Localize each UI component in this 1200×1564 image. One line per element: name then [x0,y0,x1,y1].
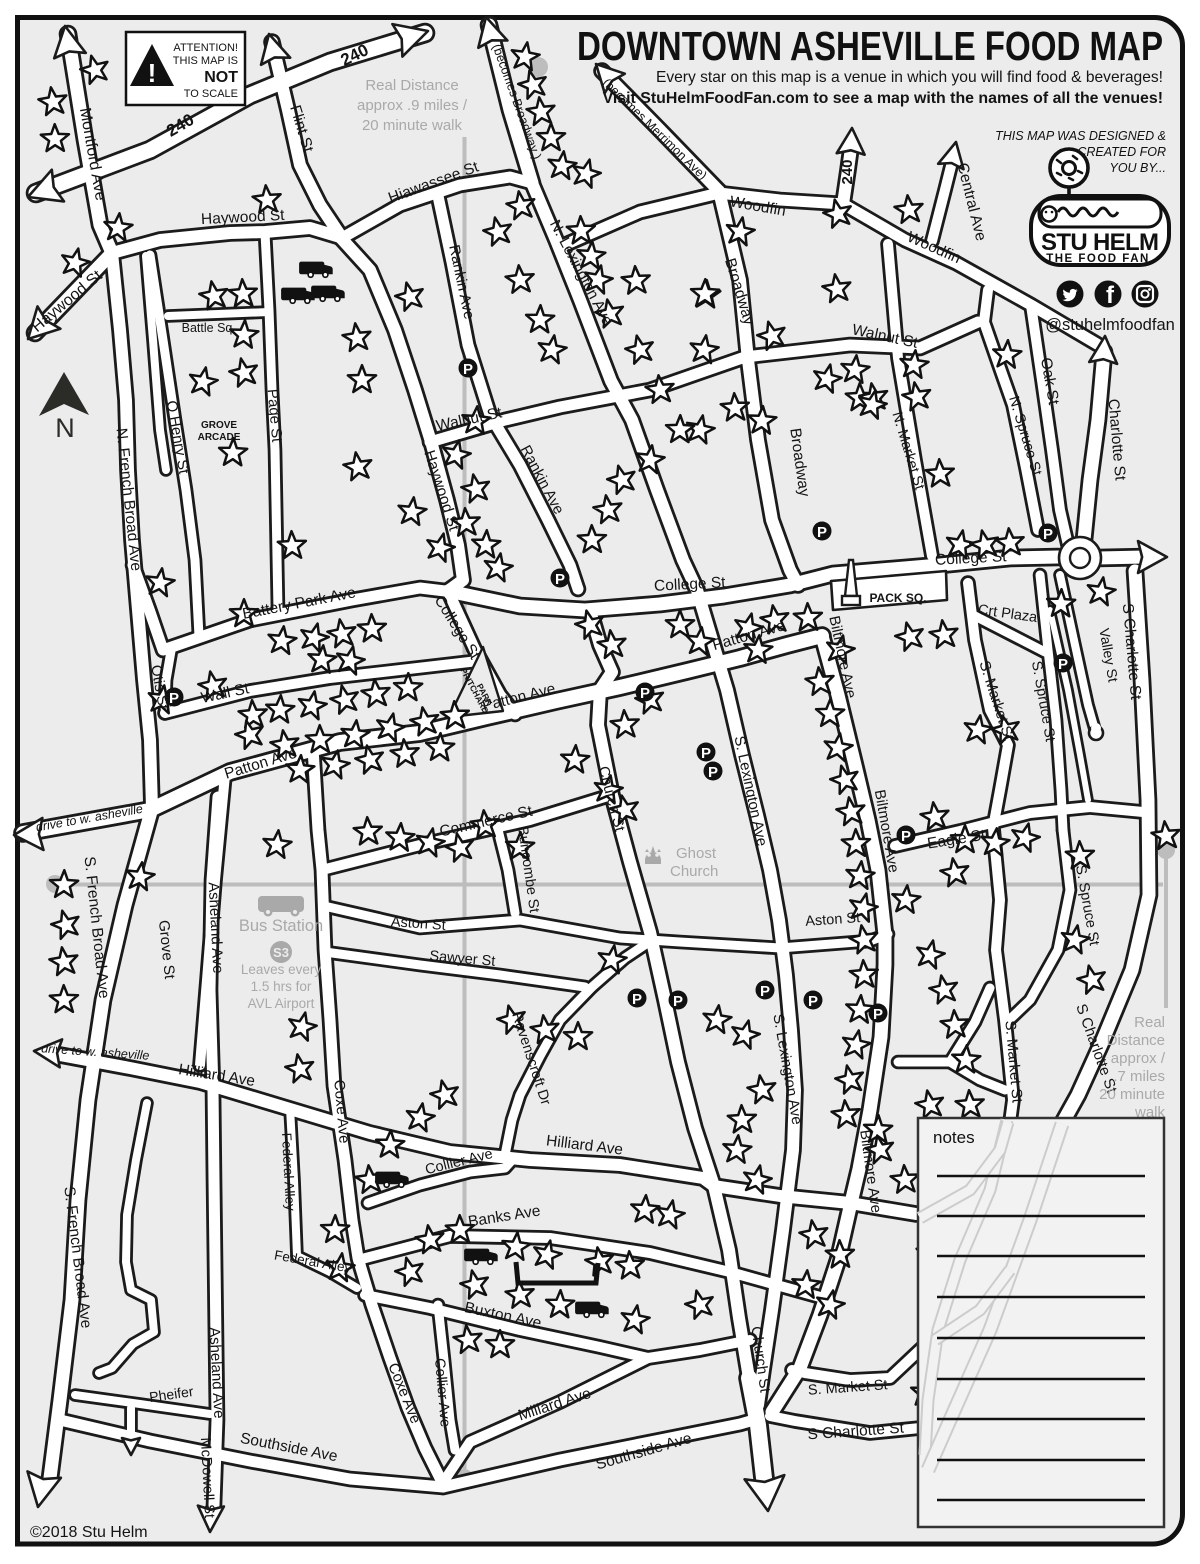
svg-text:240: 240 [839,159,856,184]
svg-text:THIS MAP IS: THIS MAP IS [173,55,238,67]
svg-text:THIS MAP WAS DESIGNED &: THIS MAP WAS DESIGNED & [995,129,1166,143]
svg-text:P: P [1043,526,1053,543]
svg-text:P: P [873,1006,883,1023]
svg-text:PACK SQ.: PACK SQ. [869,591,926,605]
svg-text:GROVE: GROVE [201,420,237,431]
svg-text:@stuhelmfoodfan: @stuhelmfoodfan [1045,316,1175,334]
svg-text:TO SCALE: TO SCALE [184,88,238,100]
svg-text:notes: notes [933,1128,975,1147]
svg-text:DOWNTOWN ASHEVILLE FOOD MAP: DOWNTOWN ASHEVILLE FOOD MAP [577,23,1163,69]
svg-text:P: P [760,983,770,1000]
svg-text:CREATED FOR: CREATED FOR [1077,145,1166,159]
svg-text:!: ! [148,58,157,88]
svg-text:ARCADE: ARCADE [198,432,241,443]
svg-text:P: P [555,571,565,588]
svg-text:P: P [632,991,642,1008]
svg-text:Every star on this map is a ve: Every star on this map is a venue in whi… [656,69,1163,86]
svg-text:.7 miles: .7 miles [1113,1068,1165,1085]
svg-text:THE FOOD FAN: THE FOOD FAN [1046,253,1150,265]
svg-text:Distance: Distance [1107,1032,1165,1049]
svg-text:AVL Airport: AVL Airport [248,996,315,1011]
svg-text:Ghost: Ghost [676,845,717,862]
svg-text:ATTENTION!: ATTENTION! [173,42,238,54]
svg-text:approx /: approx / [1111,1050,1166,1067]
svg-text:Leaves every: Leaves every [241,962,322,977]
svg-text:NOT: NOT [204,69,238,86]
svg-text:STU HELM: STU HELM [1041,229,1159,256]
svg-text:P: P [640,685,650,702]
svg-text:S3: S3 [273,945,289,960]
svg-text:Battle Sq: Battle Sq [182,321,233,335]
svg-text:1.5 hrs for: 1.5 hrs for [251,979,312,994]
svg-text:approx .9 miles /: approx .9 miles / [357,97,468,114]
svg-text:f: f [1106,282,1115,309]
svg-text:Visit StuHelmFoodFan.com to se: Visit StuHelmFoodFan.com to see a map wi… [603,90,1163,107]
svg-text:Real: Real [1134,1014,1165,1031]
svg-text:Real Distance: Real Distance [365,77,458,94]
svg-text:P: P [701,745,711,762]
svg-text:YOU BY...: YOU BY... [1109,161,1166,175]
svg-text:20 minute: 20 minute [1099,1086,1165,1103]
svg-text:P: P [901,828,911,845]
svg-text:©2018 Stu Helm: ©2018 Stu Helm [30,1524,148,1541]
svg-text:P: P [463,361,473,378]
svg-text:20 minute walk: 20 minute walk [362,117,463,134]
svg-text:N: N [55,413,75,443]
svg-text:P: P [673,993,683,1010]
svg-text:P: P [1058,656,1068,673]
svg-text:P: P [708,764,718,781]
svg-text:Bus Station: Bus Station [239,917,323,935]
svg-text:P: P [808,993,818,1010]
svg-text:P: P [817,524,827,541]
svg-text:Church: Church [670,863,718,880]
